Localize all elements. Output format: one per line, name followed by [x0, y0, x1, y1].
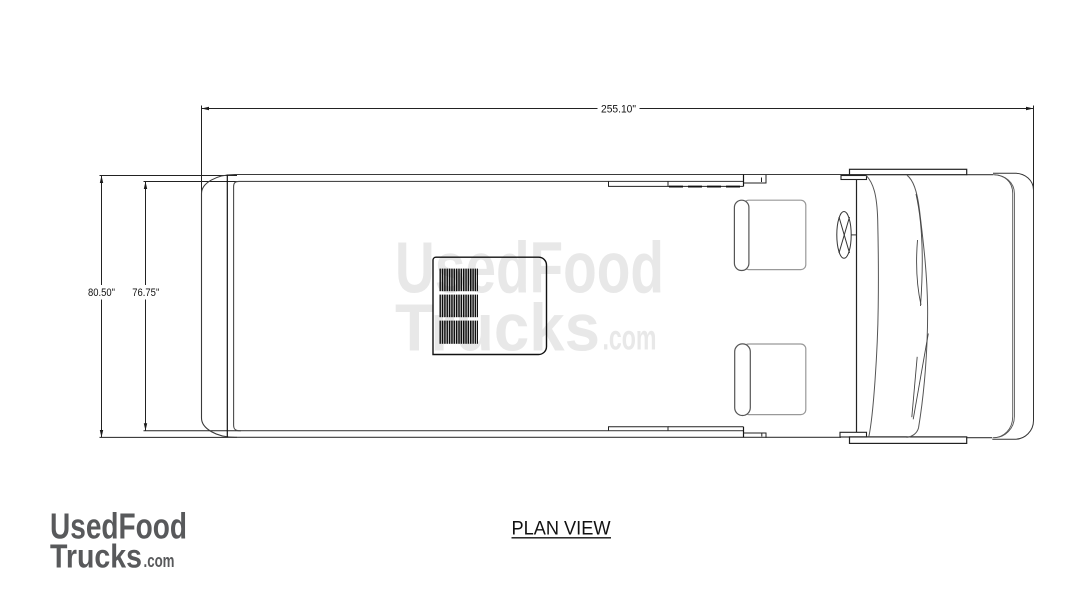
svg-text:PLAN VIEW: PLAN VIEW: [512, 518, 612, 540]
svg-text:76.75": 76.75": [132, 287, 159, 299]
svg-text:Trucks: Trucks: [50, 538, 142, 575]
svg-text:80.50": 80.50": [88, 287, 115, 299]
svg-text:.com: .com: [144, 550, 175, 571]
svg-text:255.10": 255.10": [601, 104, 636, 116]
svg-text:.com: .com: [603, 319, 657, 358]
